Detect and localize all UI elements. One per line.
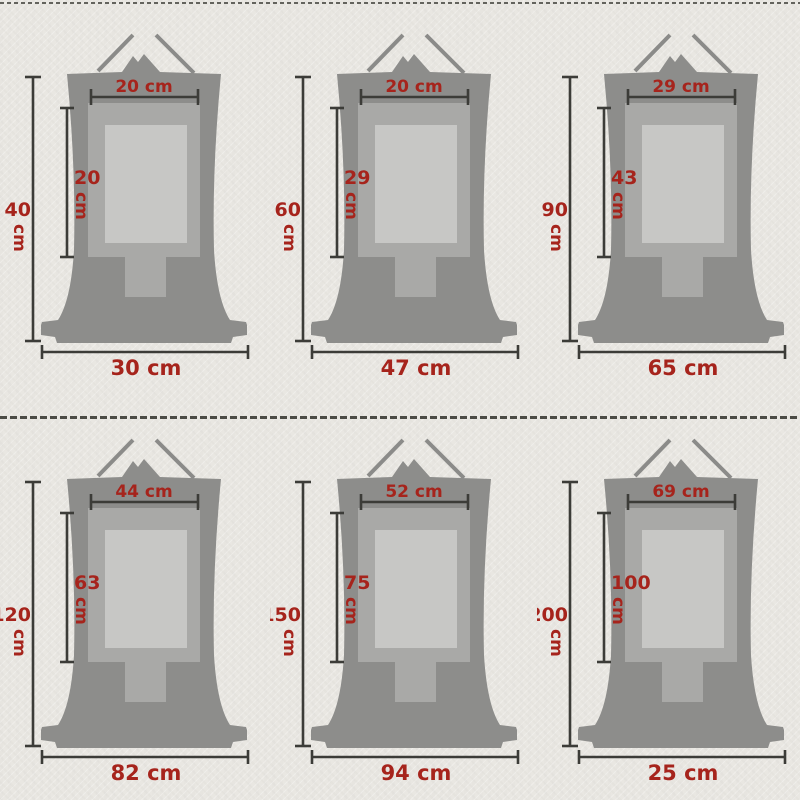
scroll-120cm-figure: 44 cm 63 cm 120 cm 82 cm xyxy=(0,413,267,798)
scroll-art-panel xyxy=(642,530,724,648)
scroll-art-panel xyxy=(375,530,457,648)
scroll-60cm-figure: 20 cm 29 cm 60 cm 47 cm xyxy=(270,8,537,393)
panel-height-number: 100 xyxy=(611,572,651,594)
panel-height-unit: cm xyxy=(608,192,628,220)
total-height-unit: cm xyxy=(546,629,566,657)
top-width-label: 69 cm xyxy=(652,482,709,502)
scroll-150cm-figure: 52 cm 75 cm 150 cm 94 cm xyxy=(270,413,537,798)
total-height-number: 90 xyxy=(542,199,568,221)
panel-height-number: 20 xyxy=(74,167,100,189)
panel-height-number: 63 xyxy=(74,572,100,594)
top-stitch-divider xyxy=(0,2,800,4)
bottom-width-label: 25 cm xyxy=(648,761,719,785)
hanging-string-right-icon xyxy=(156,35,194,73)
total-height-unit: cm xyxy=(546,224,566,252)
total-height-unit: cm xyxy=(9,224,29,252)
scroll-200cm-figure: 69 cm 100 cm 200 cm 25 cm xyxy=(537,413,800,798)
bottom-width-label: 30 cm xyxy=(111,356,182,380)
scroll-art-panel xyxy=(642,125,724,243)
bottom-width-label: 47 cm xyxy=(381,356,452,380)
total-height-number: 150 xyxy=(270,604,301,626)
scroll-drawing: 52 cm 75 cm 150 cm 94 cm xyxy=(270,413,537,798)
total-height-unit: cm xyxy=(279,224,299,252)
hanging-string-right-icon xyxy=(693,440,731,478)
total-height-number: 60 xyxy=(275,199,301,221)
bottom-width-label: 65 cm xyxy=(648,356,719,380)
hanging-string-right-icon xyxy=(426,440,464,478)
bottom-width-label: 82 cm xyxy=(111,761,182,785)
panel-height-number: 75 xyxy=(344,572,370,594)
top-width-label: 20 cm xyxy=(385,77,442,97)
hanging-string-right-icon xyxy=(693,35,731,73)
scroll-art-panel xyxy=(375,125,457,243)
total-height-number: 200 xyxy=(537,604,568,626)
top-width-label: 20 cm xyxy=(115,77,172,97)
scroll-drawing: 44 cm 63 cm 120 cm 82 cm xyxy=(0,413,267,798)
panel-height-unit: cm xyxy=(71,192,91,220)
scroll-drawing: 69 cm 100 cm 200 cm 25 cm xyxy=(537,413,800,798)
scroll-40cm-figure: 20 cm 20 cm 40 cm 30 cm xyxy=(0,8,267,393)
total-height-unit: cm xyxy=(9,629,29,657)
bottom-width-label: 94 cm xyxy=(381,761,452,785)
top-width-label: 52 cm xyxy=(385,482,442,502)
hanging-string-right-icon xyxy=(156,440,194,478)
panel-height-number: 29 xyxy=(344,167,370,189)
hanging-string-right-icon xyxy=(426,35,464,73)
scroll-drawing: 29 cm 43 cm 90 cm 65 cm xyxy=(537,8,800,393)
top-width-label: 29 cm xyxy=(652,77,709,97)
panel-height-unit: cm xyxy=(341,192,361,220)
top-width-label: 44 cm xyxy=(115,482,172,502)
scroll-drawing: 20 cm 20 cm 40 cm 30 cm xyxy=(0,8,267,393)
scroll-art-panel xyxy=(105,125,187,243)
scroll-drawing: 20 cm 29 cm 60 cm 47 cm xyxy=(270,8,537,393)
scroll-90cm-figure: 29 cm 43 cm 90 cm 65 cm xyxy=(537,8,800,393)
total-height-unit: cm xyxy=(279,629,299,657)
panel-height-unit: cm xyxy=(341,597,361,625)
panel-height-number: 43 xyxy=(611,167,637,189)
total-height-number: 40 xyxy=(5,199,31,221)
panel-height-unit: cm xyxy=(608,597,628,625)
total-height-number: 120 xyxy=(0,604,31,626)
scroll-size-chart: 20 cm 20 cm 40 cm 30 cm xyxy=(0,0,800,800)
panel-height-unit: cm xyxy=(71,597,91,625)
scroll-art-panel xyxy=(105,530,187,648)
